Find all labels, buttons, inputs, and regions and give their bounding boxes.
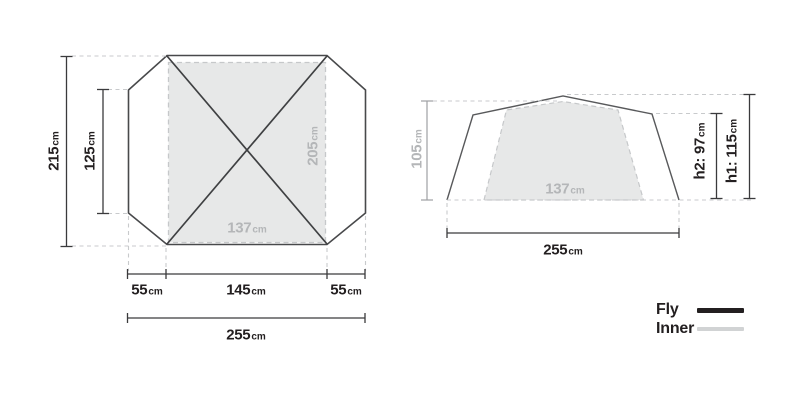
top-view-inner-depth-label: 125cm bbox=[83, 131, 98, 171]
top-view-total-depth-label: 215cm bbox=[47, 131, 62, 171]
side-view-h2-label: h2: 97cm bbox=[693, 122, 708, 179]
top-view-inner-length-label: 205cm bbox=[306, 126, 321, 166]
legend-inner-label: Inner bbox=[656, 321, 694, 337]
side-view-inner-width-label: 137cm bbox=[545, 182, 585, 197]
diagram-canvas bbox=[0, 0, 800, 400]
legend-inner-swatch bbox=[697, 327, 744, 332]
side-view-total-width-label: 255cm bbox=[543, 243, 583, 258]
tent-dimensions-diagram: 215cm 125cm 205cm 137cm 55cm 145cm 55cm … bbox=[0, 0, 800, 400]
top-view-left-porch-label: 55cm bbox=[131, 283, 163, 298]
top-view bbox=[61, 56, 366, 324]
side-view-inner-height-label: 105cm bbox=[410, 129, 425, 169]
top-view-right-porch-label: 55cm bbox=[330, 283, 362, 298]
top-view-floor-length-label: 145cm bbox=[226, 283, 266, 298]
legend-fly-label: Fly bbox=[656, 302, 679, 318]
side-view-h1-label: h1: 115cm bbox=[725, 119, 740, 183]
top-view-inner-width-label: 137cm bbox=[227, 221, 267, 236]
top-view-total-width-label: 255cm bbox=[226, 328, 266, 343]
legend-fly-swatch bbox=[697, 308, 744, 313]
